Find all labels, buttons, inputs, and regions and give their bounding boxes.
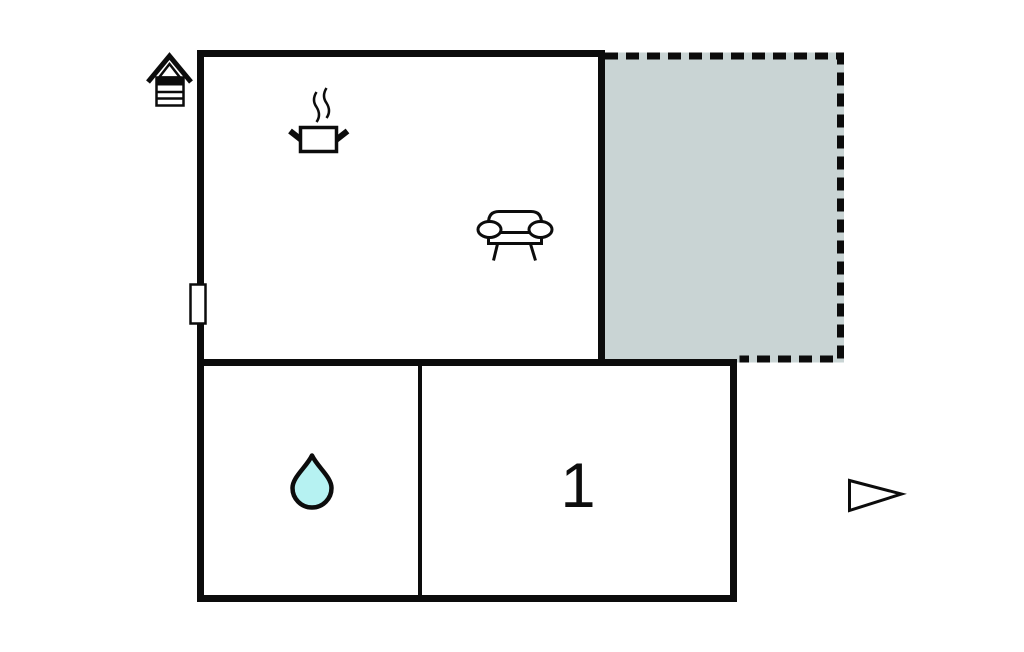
chimney-cap <box>157 78 184 86</box>
room-living-kitchen <box>201 54 602 363</box>
chimney-icon <box>148 56 191 106</box>
rooms-lower-block <box>201 363 734 599</box>
floor-plan-canvas: 1 <box>0 0 1024 652</box>
floor-plan: 1 <box>148 53 902 599</box>
terrace-area <box>602 53 845 363</box>
bedroom-number-label: 1 <box>560 451 595 521</box>
sofa-armrest-right <box>529 222 552 238</box>
room-terrace <box>602 53 845 363</box>
sofa-armrest-left <box>478 222 501 238</box>
floor-plan-page: 1 <box>0 0 1024 652</box>
window-marker-icon <box>191 285 206 324</box>
pot-body <box>301 128 337 152</box>
direction-arrow-icon <box>850 481 902 511</box>
